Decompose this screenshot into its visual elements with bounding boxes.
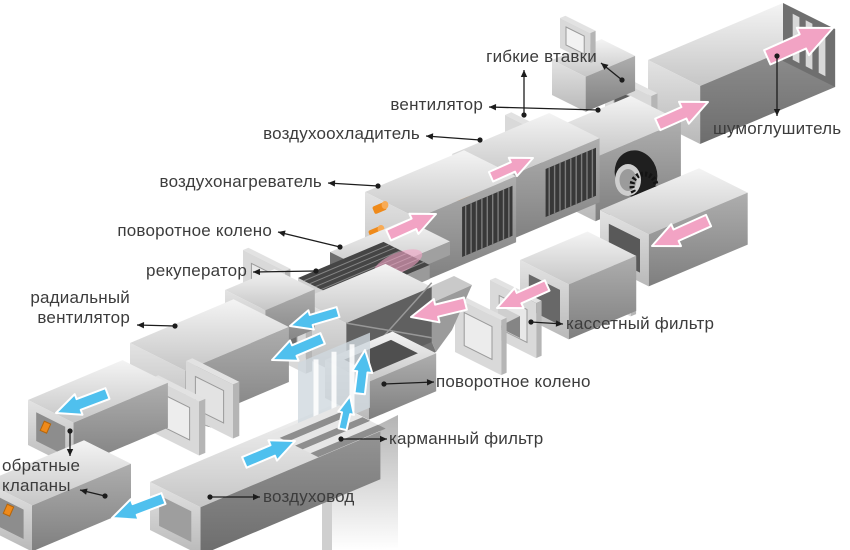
diagram-canvas [0, 0, 850, 550]
label-air-heater: воздухонагреватель [160, 172, 322, 192]
label-silencer: шумоглушитель [713, 119, 841, 139]
label-recuperator: рекуператор [146, 261, 247, 281]
label-pocket-filter: карманный фильтр [389, 429, 543, 449]
label-turn-elbow-bottom: поворотное колено [436, 372, 591, 392]
label-check-valves: обратные клапаны [2, 456, 80, 495]
hvac-exploded-diagram: гибкие втавки вентилятор воздухоохладите… [0, 0, 850, 550]
label-fan: вентилятор [390, 95, 483, 115]
label-cassette-filter: кассетный фильтр [566, 314, 714, 334]
label-flexible-inserts: гибкие втавки [486, 47, 597, 67]
label-air-cooler: воздухоохладитель [263, 124, 420, 144]
label-turn-elbow-top: поворотное колено [117, 221, 272, 241]
label-radial-fan: радиальный вентилятор [30, 288, 130, 327]
label-air-duct: воздуховод [263, 487, 355, 507]
